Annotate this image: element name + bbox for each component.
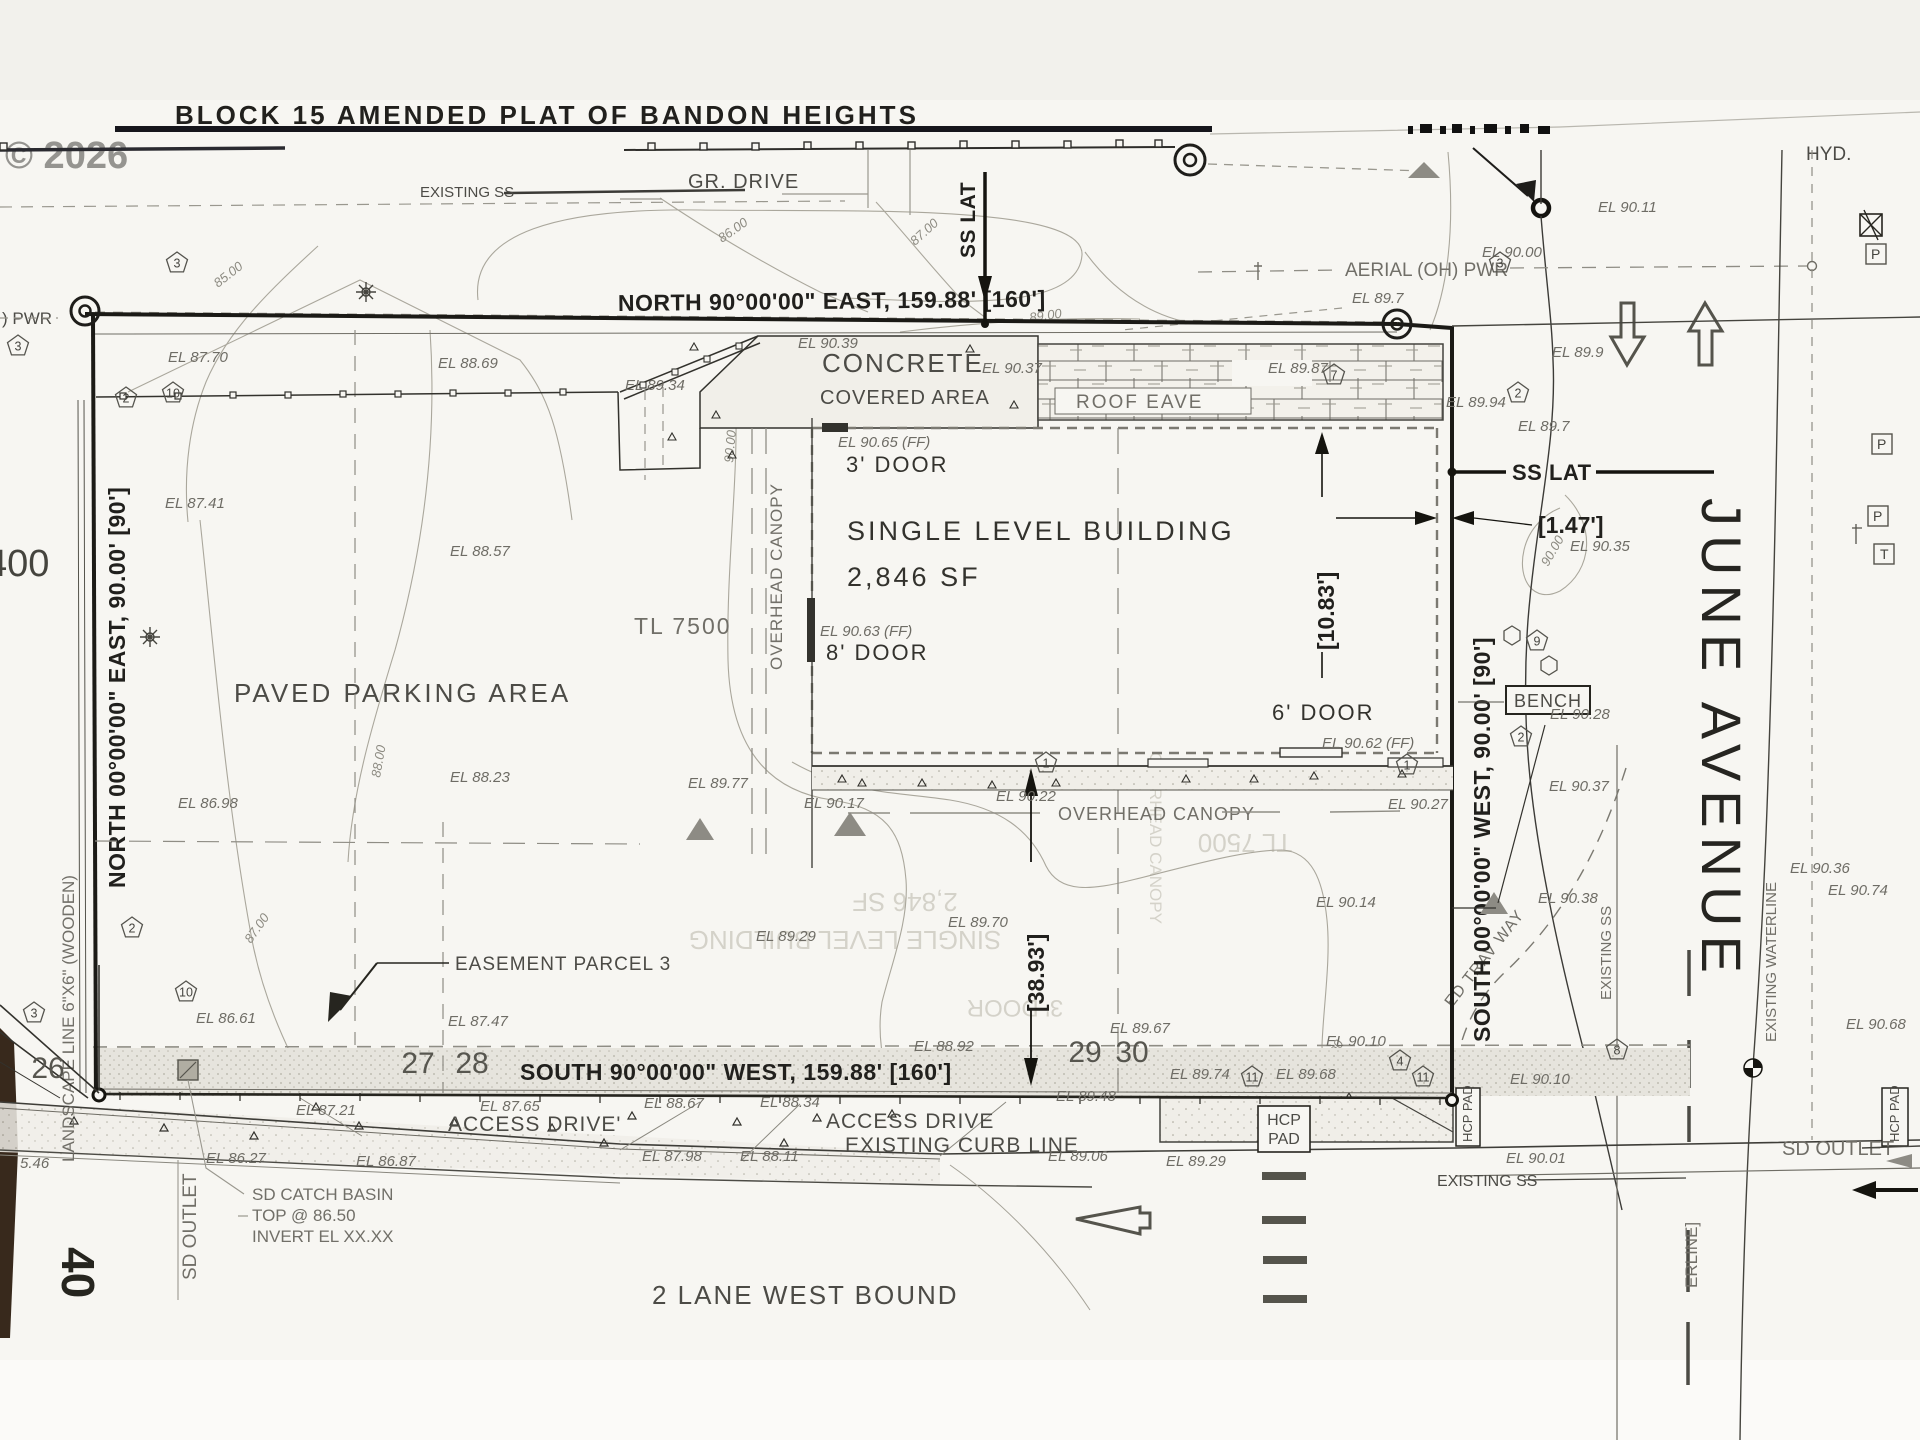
ss-lat-vert-label: SS LAT [957, 182, 980, 258]
tl400-label: 400 [0, 543, 49, 585]
spot-elevation: EL 89.70 [948, 914, 1008, 931]
east-boundary-bearing: SOUTH 00°00'00" WEST, 90.00' [90'] [1469, 637, 1495, 1042]
landscape-line-label: LANDSCAPE LINE 6"X6" (WOODEN) [59, 875, 78, 1162]
south-boundary-bearing: SOUTH 90°00'00" WEST, 159.88' [160'] [520, 1059, 952, 1085]
roof-eave-labelbox: ROOF EAVE [1055, 388, 1251, 414]
spot-elevation: EL 89.77 [688, 775, 748, 792]
roof-eave-label: ROOF EAVE [1076, 392, 1203, 413]
spot-elevation: EL 90.27 [1388, 796, 1448, 813]
access-drive-right-label: ACCESS DRIVE [826, 1110, 994, 1133]
catch-basin-line1: SD CATCH BASIN [252, 1185, 393, 1204]
pentagon-number: 8 [1614, 1044, 1621, 1058]
spot-elevation: EL 86.98 [178, 795, 238, 812]
pentagon-number: 11 [1246, 1071, 1259, 1085]
gr-drive-label: GR. DRIVE [688, 171, 799, 193]
door3-label: 3' DOOR [846, 452, 949, 477]
spot-elevation: EL 90.11 [1598, 199, 1657, 216]
spot-elevation: EL 89.74 [1170, 1066, 1230, 1083]
spot-elevation: EL 87.41 [165, 495, 225, 512]
spot-elevation: EL 90.14 [1316, 894, 1376, 911]
hcp-pad-vert-right: HCP PAD [1882, 1085, 1908, 1146]
dim-147-label: [1.47'] [1538, 512, 1604, 538]
paved-parking-label: PAVED PARKING AREA [234, 678, 571, 708]
spot-elevation: EL 87.98 [642, 1148, 702, 1165]
centerline-label: ERLINE] [1682, 1222, 1701, 1288]
spot-elevation: EL 90.36 [1790, 860, 1850, 877]
concrete-label-2: COVERED AREA [820, 387, 990, 409]
door-8ft [807, 598, 815, 662]
catch-basin-line3: INVERT EL XX.XX [252, 1227, 393, 1246]
pentagon-number: 9 [1534, 635, 1541, 649]
spot-elevation: EL 86.87 [356, 1153, 416, 1170]
hyd-label: HYD. [1806, 144, 1851, 165]
concrete-label-1: CONCRETE [822, 348, 984, 378]
spot-elevation: EL 90.38 [1538, 890, 1598, 907]
pentagon-number: 3 [1497, 257, 1504, 271]
pentagon-number: 2 [129, 922, 136, 936]
west-boundary-bearing: NORTH 00°00'00" EAST, 90.00' [90'] [104, 487, 130, 888]
spot-elevation: EL 87.21 [296, 1102, 356, 1119]
p-box-label: P [1871, 246, 1880, 262]
dim-3893-label: [38.93'] [1023, 934, 1049, 1012]
spot-elevation: EL 90.74 [1828, 882, 1888, 899]
lot-number: 30 [1115, 1036, 1148, 1069]
north-boundary-bearing: NORTH 90°00'00" EAST, 159.88' [160'] [618, 286, 1046, 316]
spot-elevation: EL 90.10 [1510, 1071, 1570, 1088]
lot-number: 28 [455, 1047, 488, 1080]
spot-elevation: EL 86.61 [196, 1010, 256, 1027]
ff-door6-label: EL 90.62 (FF) [1322, 735, 1414, 752]
forty-label: 40 [52, 1247, 104, 1298]
existing-ss-bottom-label: EXISTING SS [1437, 1173, 1537, 1190]
p-box-label: P [1877, 436, 1886, 452]
spot-elevation: EL 88.67 [644, 1095, 704, 1112]
t-box-label: T [1880, 546, 1889, 562]
spot-elevation: EL 87.47 [448, 1013, 508, 1030]
pentagon-number: 3 [15, 340, 22, 354]
spot-elevation: EL 88.34 [760, 1094, 820, 1111]
spot-elevation: EL 89.29 [1166, 1153, 1226, 1170]
overhead-canopy-vert-label: OVERHEAD CANOPY [767, 483, 786, 670]
spot-elevation: EL 88.23 [450, 769, 510, 786]
spot-elevation: EL 90.35 [1570, 538, 1630, 555]
spot-elevation: EL 90.22 [996, 788, 1056, 805]
p-box-label: P [1873, 508, 1882, 524]
spot-elevation: EL 90.39 [798, 335, 858, 352]
spot-elevation: EL 88.92 [914, 1038, 974, 1055]
site-plan-sheet: 2,846 SFSINGLE LEVEL BUILDING3' DOORTL 7… [0, 0, 1920, 1440]
hcp-pad-vert-left: HCP PAD [1456, 1085, 1480, 1146]
spot-elevation: 5.46 [20, 1155, 50, 1172]
title-underline [115, 126, 1212, 132]
spot-elevation: EL 90.17 [804, 795, 864, 812]
spot-elevation: EL 88.69 [438, 355, 498, 372]
westbound-label: 2 LANE WEST BOUND [652, 1280, 959, 1310]
pentagon-number: 2 [123, 392, 130, 406]
quartered-monument [1744, 1059, 1762, 1077]
spot-elevation: EL 89.34 [625, 377, 685, 394]
door8-label: 8' DOOR [826, 640, 929, 665]
spot-elevation: EL 89.68 [1276, 1066, 1336, 1083]
sd-outlet-left-label: SD OUTLET [180, 1173, 201, 1280]
hcp-pad-box: HCP PAD [1258, 1106, 1310, 1152]
existing-ss-top-label: EXISTING SS [420, 184, 514, 201]
ff-door3-label: EL 90.65 (FF) [838, 434, 930, 451]
spot-elevation: EL 86.27 [206, 1150, 266, 1167]
building-label-2: 2,846 SF [847, 562, 981, 592]
spot-elevation: EL 89.29 [756, 928, 816, 945]
door6-label: 6' DOOR [1272, 700, 1375, 725]
lot-number: 29 [1068, 1036, 1101, 1069]
dim-1083-label: [10.83'] [1313, 572, 1339, 650]
spot-elevation: EL 90.68 [1846, 1016, 1906, 1033]
existing-curb-line-label: EXISTING CURB LINE [845, 1134, 1079, 1157]
door-3ft [822, 423, 848, 432]
pentagon-number: 1 [1043, 757, 1050, 771]
spot-elevation: EL 89.48 [1056, 1088, 1116, 1105]
spot-elevation: EL 88.57 [450, 543, 510, 560]
pentagon-number: 1 [1404, 759, 1411, 773]
spot-elevation: EL 90.37 [1549, 778, 1609, 795]
spot-elevation: EL 90.01 [1506, 1150, 1566, 1167]
pentagon-number: 10 [166, 387, 180, 401]
spot-elevation: EL 89.06 [1048, 1148, 1108, 1165]
spot-elevation: EL 90.10 [1326, 1033, 1386, 1050]
easement-label: EASEMENT PARCEL 3 [455, 954, 671, 975]
ff-door8-label: EL 90.63 (FF) [820, 623, 912, 640]
spot-elevation: EL 89.7 [1352, 290, 1404, 307]
pentagon-number: 2 [1518, 731, 1525, 745]
canopy-slab [812, 766, 1453, 790]
site-plan-drawing: 2,846 SFSINGLE LEVEL BUILDING3' DOORTL 7… [0, 0, 1920, 1440]
spot-elevation: EL 89.7 [1518, 418, 1570, 435]
spot-elevation: EL 90.28 [1550, 706, 1610, 723]
pentagon-number: 11 [1417, 1071, 1430, 1085]
tl7500-label: TL 7500 [634, 613, 732, 639]
access-drive-left-label: ACCESS DRIVE' [448, 1113, 621, 1136]
hcp-pad-label: HCP PAD [1887, 1085, 1902, 1142]
copyright-watermark: © 2026 [5, 135, 128, 177]
pentagon-number: 2 [1515, 387, 1522, 401]
pentagon-number: 3 [174, 257, 181, 271]
lot-number: 27 [401, 1047, 434, 1080]
spot-elevation: EL 89.87 [1268, 360, 1328, 377]
existing-ss-vert-label: EXISTING SS [1598, 906, 1615, 1000]
pad-label: PAD [1268, 1131, 1300, 1148]
plat-title: BLOCK 15 AMENDED PLAT OF BANDON HEIGHTS [175, 100, 919, 130]
hcp-pad-label: HCP PAD [1460, 1085, 1475, 1142]
pentagon-number: 7 [1331, 369, 1338, 383]
spot-elevation: EL 87.65 [480, 1098, 540, 1115]
ss-lat-horz-label: SS LAT [1512, 460, 1592, 485]
spot-elevation: EL 88.11 [740, 1148, 799, 1165]
lot-number: 26 [31, 1052, 64, 1085]
pentagon-number: 3 [31, 1007, 38, 1021]
spot-elevation: EL 89.67 [1110, 1020, 1170, 1037]
sd-outlet-right-label: SD OUTLET [1782, 1138, 1894, 1160]
overhead-canopy-horz-label: OVERHEAD CANOPY [1058, 804, 1255, 824]
pentagon-number: 4 [1397, 1055, 1404, 1069]
existing-waterline-label: EXISTING WATERLINE [1763, 882, 1780, 1042]
spot-elevation: EL 87.70 [168, 349, 228, 366]
pentagon-number: 10 [179, 986, 193, 1000]
building-label-1: SINGLE LEVEL BUILDING [847, 516, 1235, 546]
june-avenue-label: JUNE AVENUE [1690, 498, 1753, 982]
aerial-pwr-label: AERIAL (OH) PWR [1345, 260, 1508, 281]
spot-elevation: EL 89.9 [1552, 344, 1604, 361]
spot-elevation: EL 90.37 [982, 360, 1042, 377]
hcp-label: HCP [1267, 1112, 1301, 1129]
spot-elevation: EL 89.94 [1446, 394, 1506, 411]
catch-basin-line2: TOP @ 86.50 [252, 1206, 356, 1225]
